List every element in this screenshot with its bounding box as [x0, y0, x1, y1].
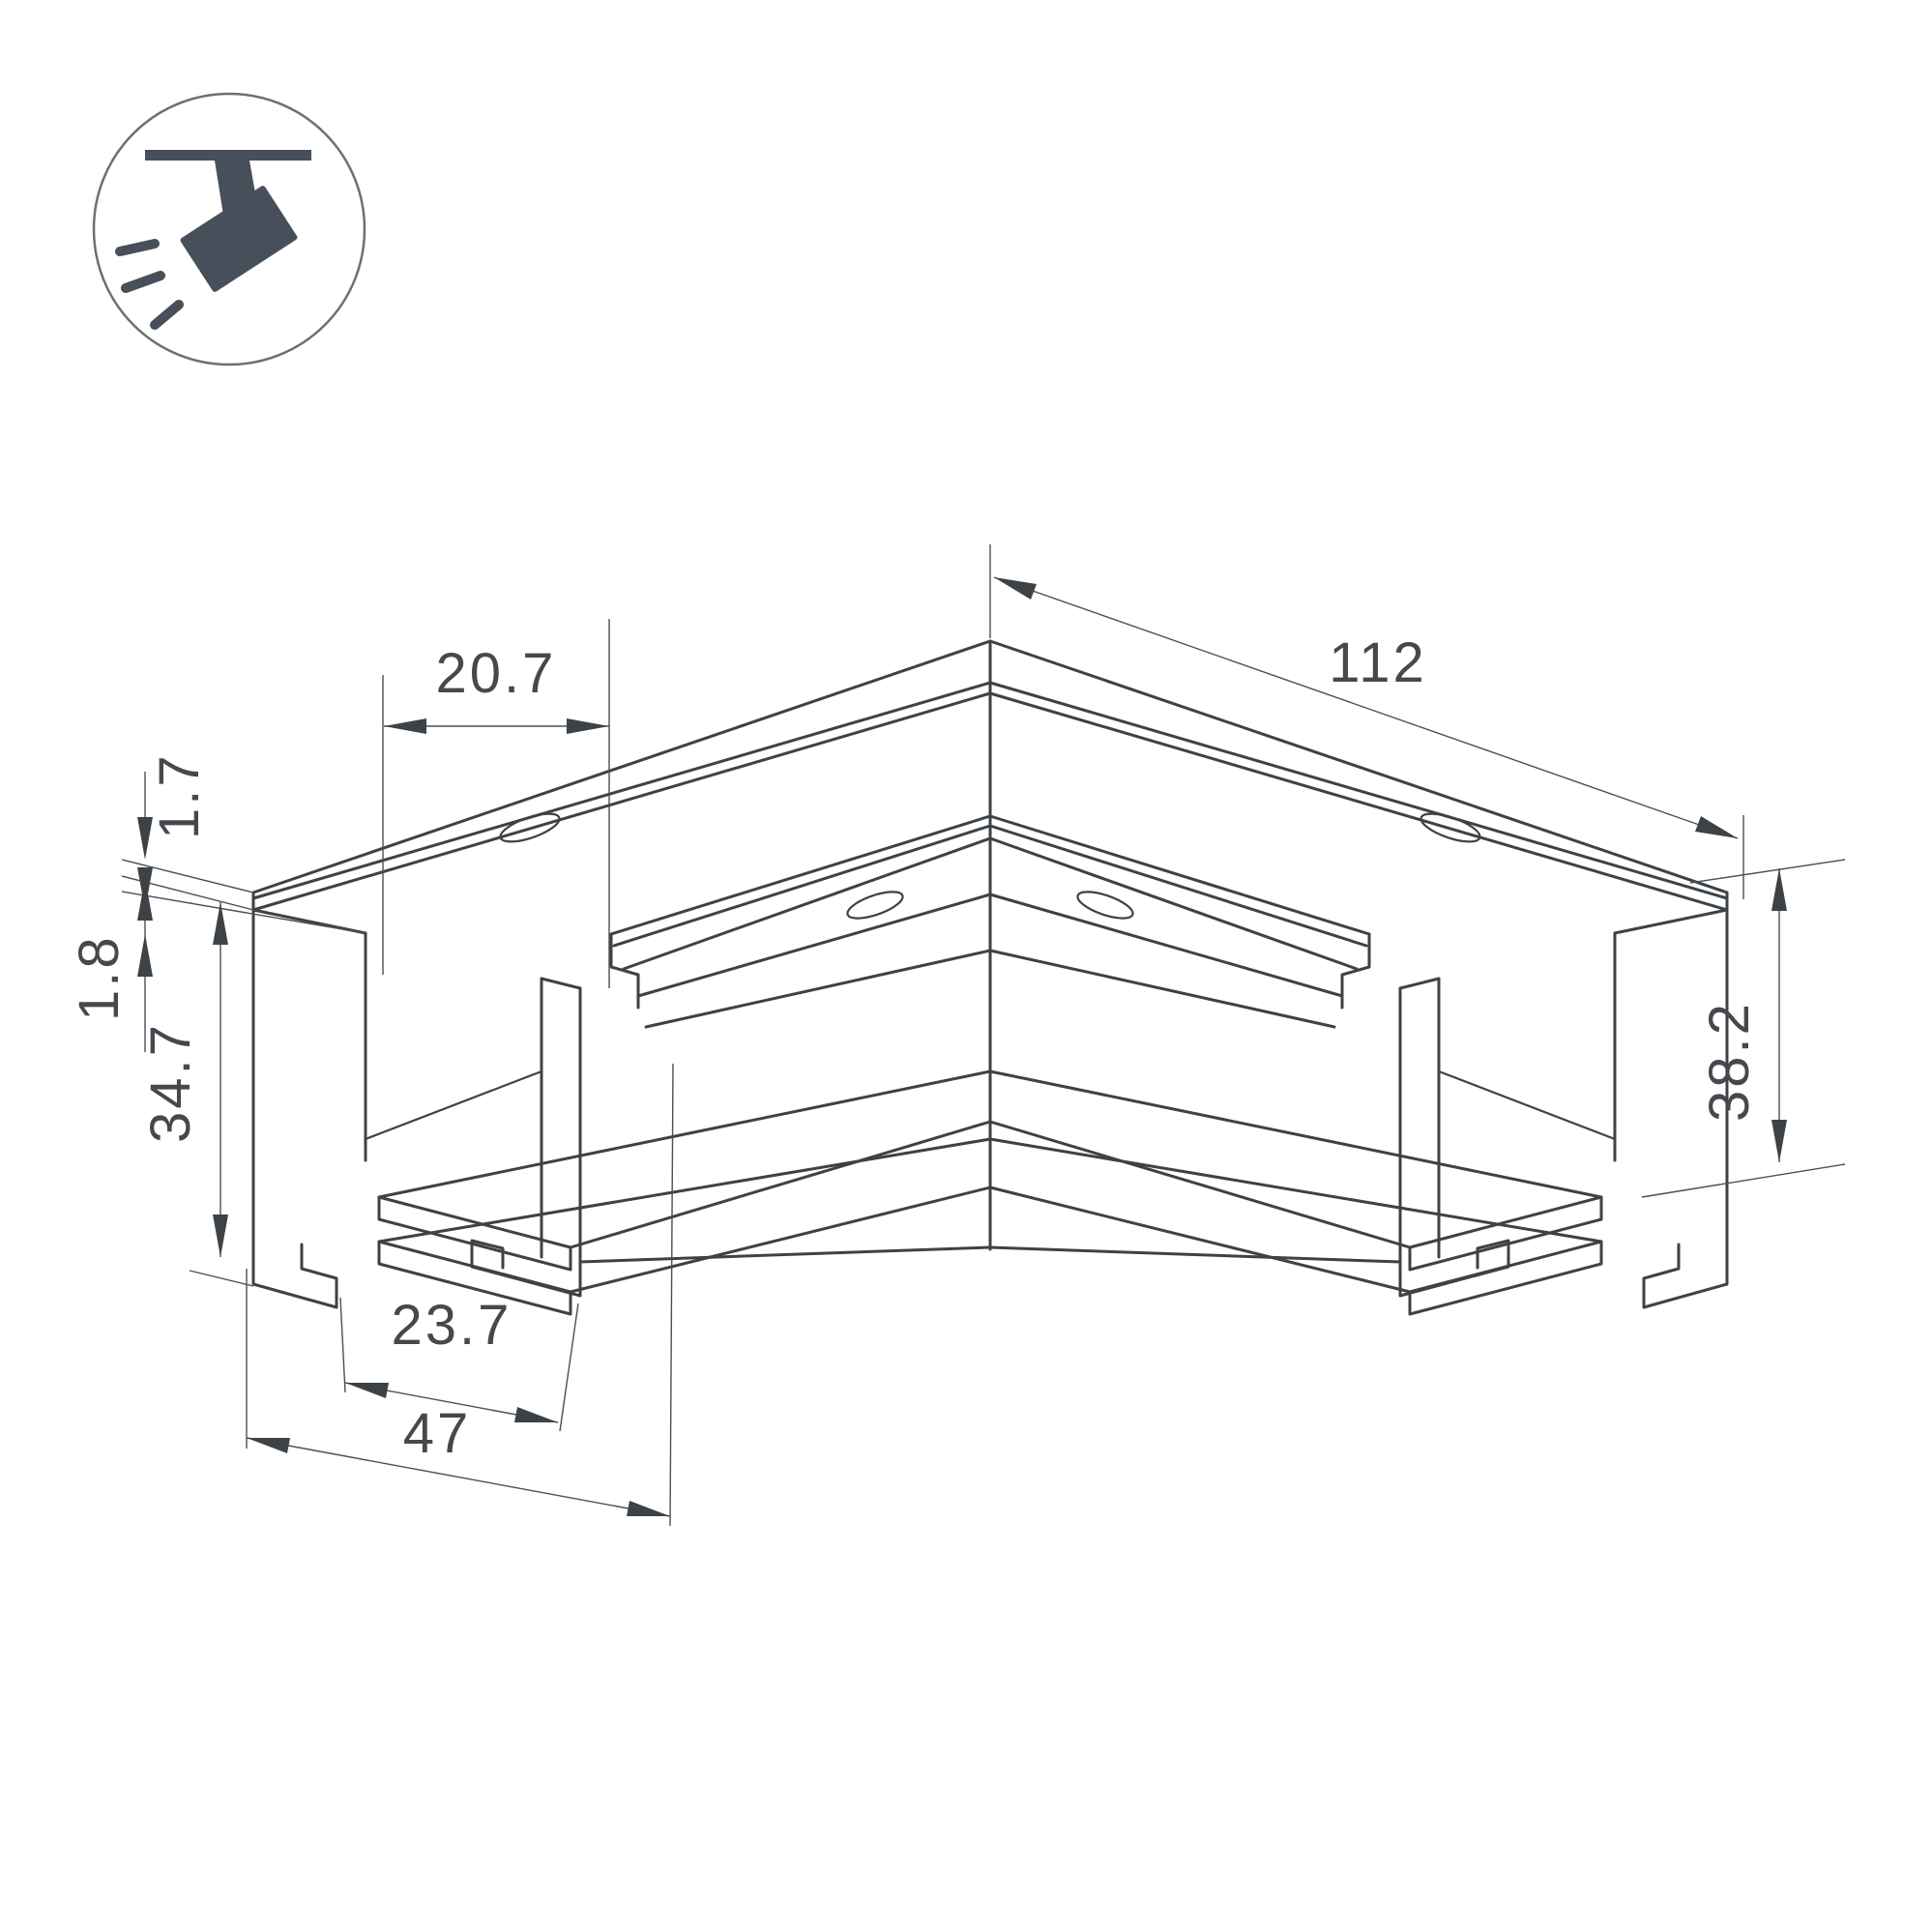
dimension-arm-length: 112 [990, 544, 1743, 899]
track-light-icon [94, 94, 365, 365]
dimension-body-height: 34.7 [139, 902, 253, 1286]
dimension-total-height: 38.2 [1642, 860, 1845, 1197]
right-arm [990, 641, 1727, 1314]
arrowhead-icon [384, 718, 426, 734]
dim-label-track-width: 23.7 [392, 1294, 512, 1357]
drawing-page: 20.7 1.7 1.8 34.7 [0, 0, 1932, 1932]
dim-label-top-inset: 20.7 [436, 642, 557, 705]
arrowhead-icon [567, 718, 609, 734]
dim-label-total-height: 38.2 [1698, 1001, 1761, 1122]
icon-ceiling-track [145, 150, 311, 161]
dim-label-flange-thickness: 1.7 [148, 752, 211, 839]
dim-label-ledge-offset: 1.8 [68, 934, 131, 1021]
dim-label-body-height: 34.7 [139, 1022, 202, 1143]
technical-drawing: 20.7 1.7 1.8 34.7 [0, 0, 1932, 1932]
dim-label-arm-length: 112 [1329, 631, 1426, 694]
corner-profile-body [253, 641, 1727, 1314]
dim-label-base-width: 47 [403, 1402, 472, 1465]
left-arm [253, 641, 990, 1314]
